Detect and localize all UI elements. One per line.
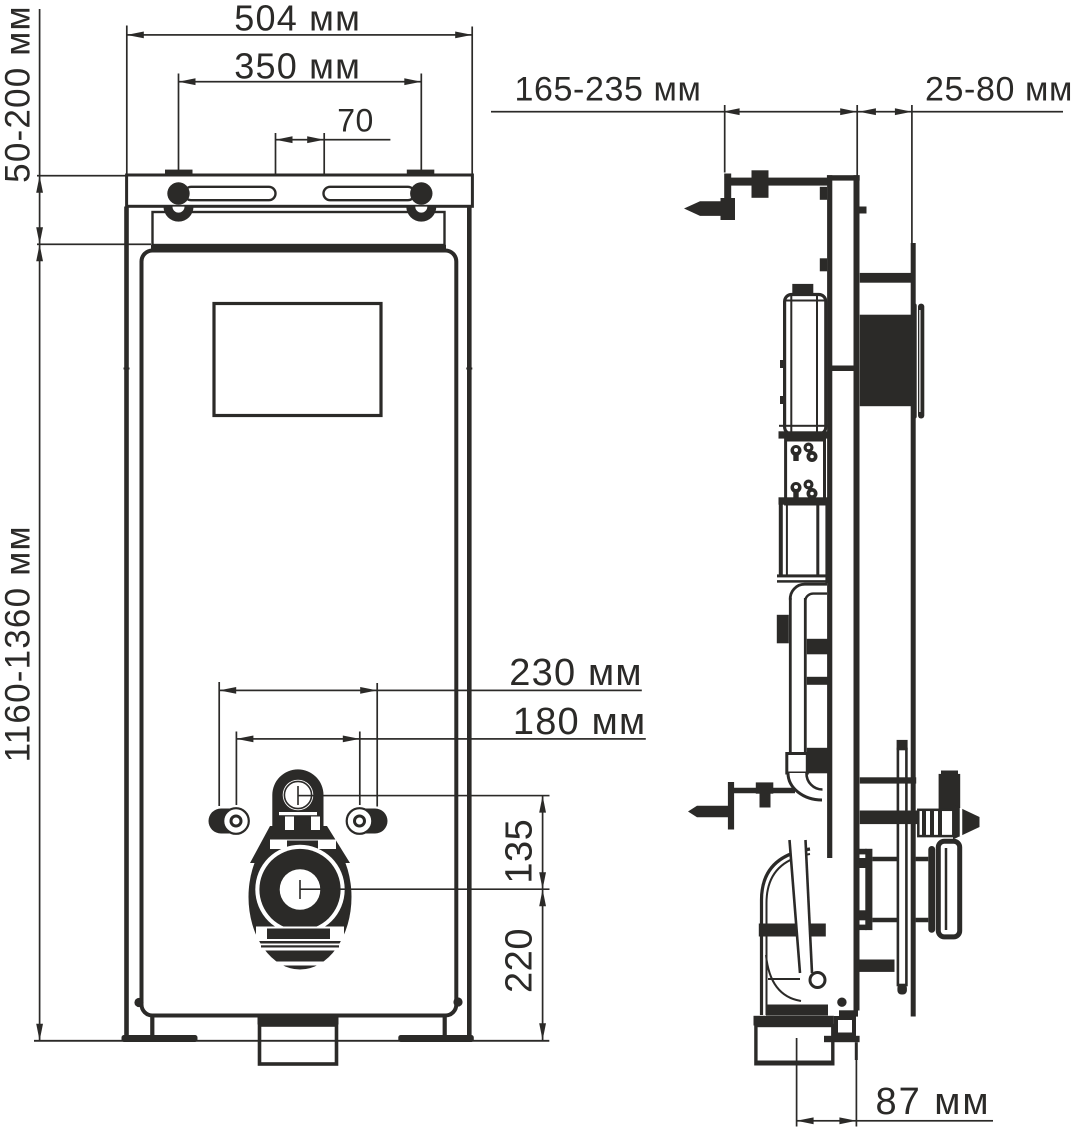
svg-text:50-200 мм: 50-200 мм bbox=[0, 5, 38, 183]
svg-text:350 мм: 350 мм bbox=[234, 46, 361, 87]
svg-text:230 мм: 230 мм bbox=[509, 652, 642, 694]
svg-text:70: 70 bbox=[337, 103, 374, 139]
svg-text:1160-1360 мм: 1160-1360 мм bbox=[0, 525, 38, 762]
svg-text:25-80 мм: 25-80 мм bbox=[925, 71, 1073, 109]
svg-text:135: 135 bbox=[499, 819, 541, 884]
svg-text:87 мм: 87 мм bbox=[875, 1081, 990, 1123]
svg-text:504 мм: 504 мм bbox=[234, 0, 361, 39]
svg-text:220: 220 bbox=[499, 928, 541, 993]
svg-text:165-235 мм: 165-235 мм bbox=[515, 71, 702, 109]
svg-text:180 мм: 180 мм bbox=[513, 701, 646, 743]
